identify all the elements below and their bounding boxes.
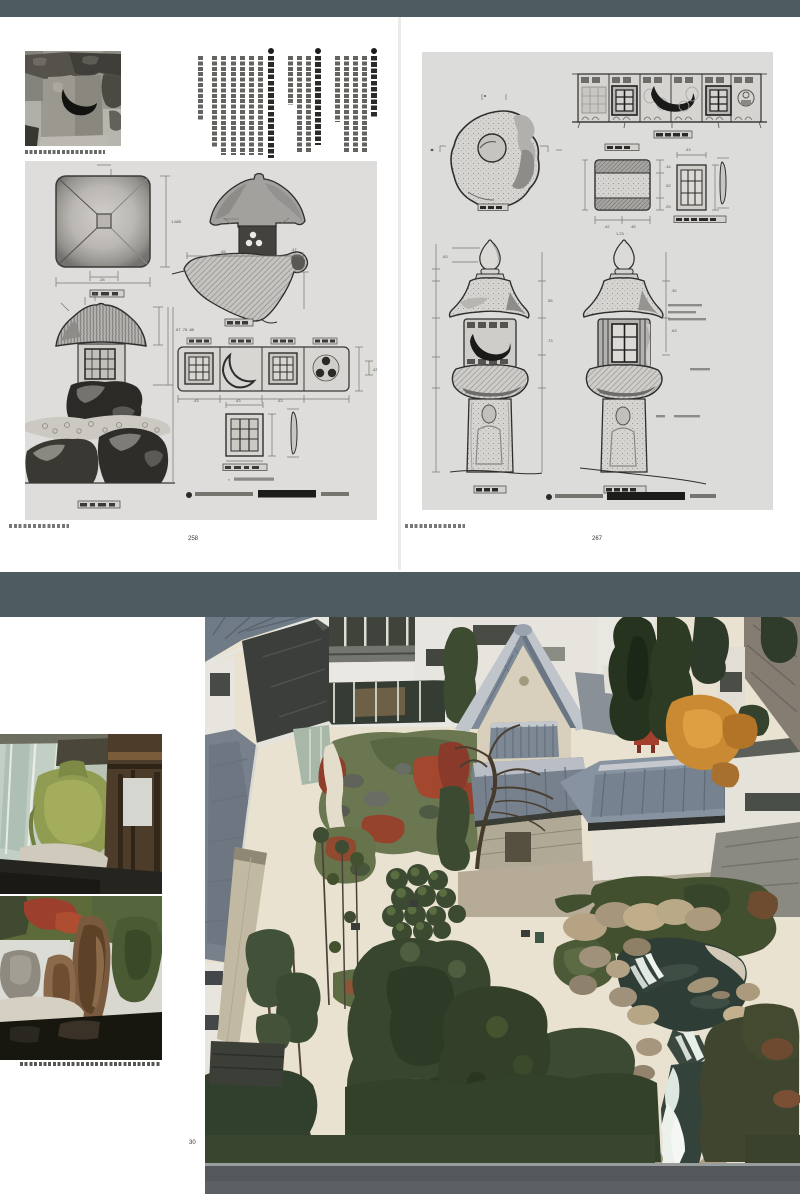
- svg-text:.63: .63: [442, 254, 448, 259]
- svg-text:*: *: [228, 478, 230, 483]
- svg-text:1.23: 1.23: [616, 231, 625, 236]
- svg-text:.52: .52: [665, 183, 671, 188]
- svg-text:.30: .30: [671, 288, 677, 293]
- svg-text:.43: .43: [235, 398, 241, 403]
- svg-text:1.685: 1.685: [171, 219, 182, 224]
- svg-text:.55: .55: [547, 298, 553, 303]
- svg-text:.43: .43: [193, 398, 199, 403]
- svg-text:.45: .45: [220, 249, 226, 254]
- svg-text:.67 .78 .88: .67 .78 .88: [175, 327, 195, 332]
- svg-text:.28: .28: [99, 277, 105, 282]
- svg-text:.25: .25: [665, 204, 671, 209]
- svg-text:.45: .45: [630, 224, 636, 229]
- svg-text:.47: .47: [291, 247, 297, 252]
- svg-text:.42: .42: [604, 224, 610, 229]
- svg-text:.43: .43: [372, 367, 377, 372]
- svg-text:.43: .43: [277, 398, 283, 403]
- svg-text:.43: .43: [685, 147, 691, 152]
- svg-text:.63: .63: [671, 328, 677, 333]
- svg-text:.73: .73: [547, 338, 553, 343]
- svg-text:.16: .16: [665, 164, 671, 169]
